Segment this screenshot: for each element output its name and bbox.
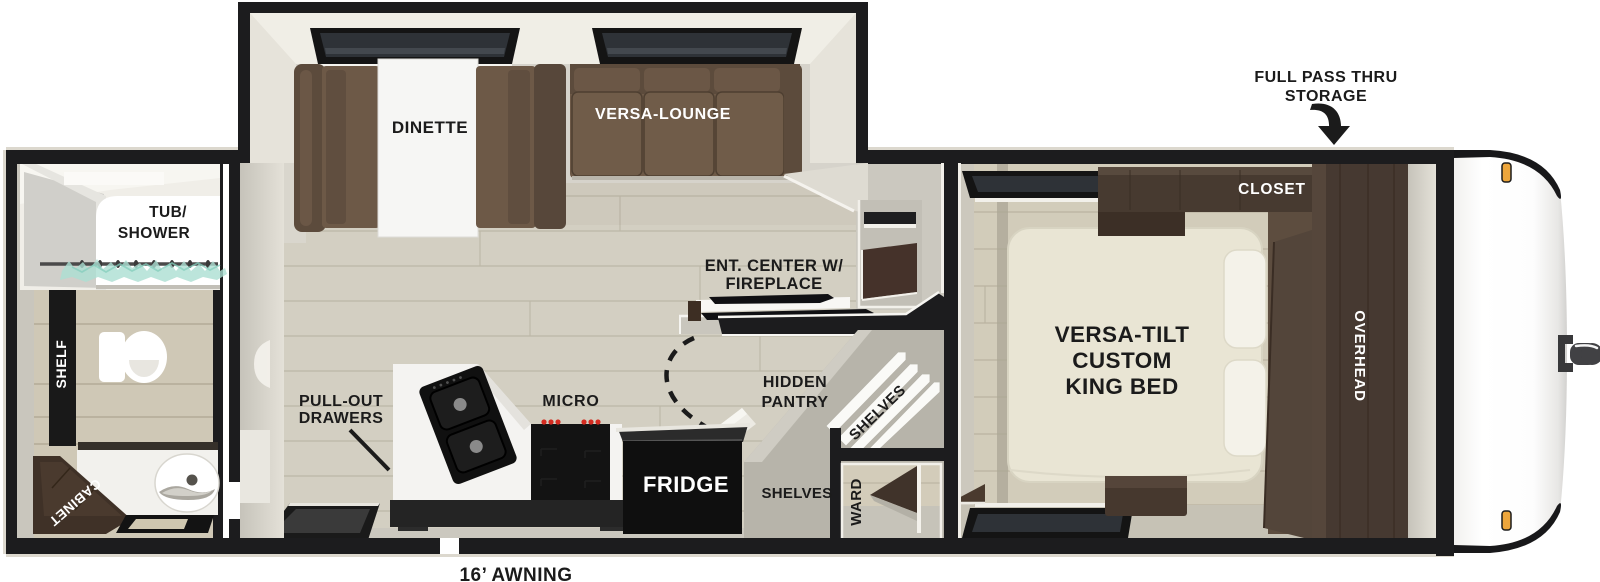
svg-text:OVERHEAD: OVERHEAD: [1351, 310, 1368, 401]
svg-text:SHELVES: SHELVES: [761, 485, 832, 502]
svg-text:KING BED: KING BED: [1065, 374, 1178, 399]
svg-text:FIREPLACE: FIREPLACE: [725, 275, 822, 293]
svg-text:VERSA-LOUNGE: VERSA-LOUNGE: [595, 106, 731, 123]
svg-text:VERSA-TILT: VERSA-TILT: [1055, 322, 1190, 347]
svg-text:SHELF: SHELF: [53, 340, 69, 389]
svg-text:CUSTOM: CUSTOM: [1072, 348, 1172, 373]
svg-text:STORAGE: STORAGE: [1285, 88, 1367, 105]
svg-text:WARD: WARD: [848, 478, 865, 525]
svg-text:DINETTE: DINETTE: [392, 118, 468, 137]
svg-text:PANTRY: PANTRY: [762, 394, 829, 411]
svg-text:ENT. CENTER W/: ENT. CENTER W/: [705, 257, 844, 275]
svg-text:SHOWER: SHOWER: [118, 225, 190, 242]
svg-text:DRAWERS: DRAWERS: [299, 410, 384, 427]
svg-text:FRIDGE: FRIDGE: [643, 472, 729, 497]
svg-text:16’ AWNING: 16’ AWNING: [459, 565, 572, 582]
svg-text:FULL PASS THRU: FULL PASS THRU: [1254, 69, 1397, 86]
svg-text:CLOSET: CLOSET: [1238, 181, 1306, 198]
svg-text:MICRO: MICRO: [542, 393, 599, 410]
svg-text:HIDDEN: HIDDEN: [763, 374, 827, 391]
svg-text:TUB/: TUB/: [149, 204, 187, 221]
svg-text:PULL-OUT: PULL-OUT: [299, 393, 383, 410]
